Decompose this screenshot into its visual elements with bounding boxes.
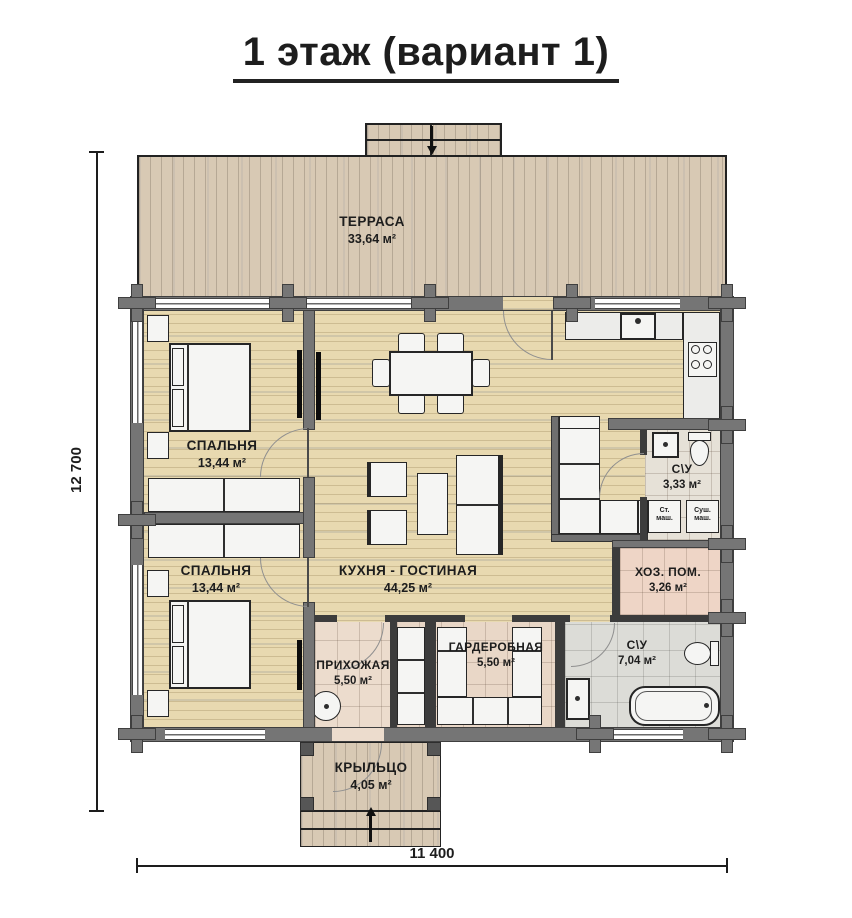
log-cross bbox=[118, 514, 156, 526]
toilet-tank bbox=[710, 641, 719, 666]
dining-table bbox=[389, 351, 473, 396]
room-name: СПАЛЬНЯ bbox=[187, 437, 258, 455]
wall-right bbox=[720, 296, 734, 742]
terrace-door-opening bbox=[503, 297, 553, 310]
pouf-center bbox=[324, 704, 329, 709]
room-name: ГАРДЕРОБНАЯ bbox=[449, 640, 544, 656]
floor-plan-page: 1 этаж (вариант 1) 12 700 11 400 bbox=[0, 0, 852, 918]
entrance-arrow-up-head bbox=[366, 807, 376, 816]
dryer-machine-label: Суш. маш. bbox=[687, 507, 718, 523]
corner-sofa-back bbox=[551, 416, 559, 542]
cabinet-divider bbox=[507, 698, 509, 724]
log-cross bbox=[553, 297, 591, 309]
window bbox=[595, 298, 680, 309]
log-cross bbox=[708, 728, 746, 740]
window bbox=[300, 298, 425, 309]
cabinet-divider bbox=[472, 698, 474, 724]
bed-pillow bbox=[172, 389, 184, 427]
nightstand bbox=[147, 690, 169, 717]
room-label-wardrobe: ГАРДЕРОБНАЯ 5,50 м² bbox=[449, 640, 544, 671]
bed-pillow bbox=[172, 348, 184, 386]
sink-faucet bbox=[635, 318, 641, 324]
dim-label-bottom: 11 400 bbox=[382, 845, 482, 862]
dim-tick bbox=[89, 151, 104, 153]
corner-sofa-seat bbox=[600, 500, 638, 534]
door-leaf bbox=[307, 558, 309, 607]
porch-post bbox=[427, 797, 441, 811]
log-cross bbox=[269, 297, 307, 309]
log-cross bbox=[118, 728, 156, 740]
bed-fold-line bbox=[187, 344, 189, 431]
bathtub-faucet bbox=[704, 703, 709, 708]
dim-tick bbox=[726, 858, 728, 873]
cabinet-divider bbox=[223, 525, 225, 557]
room-area: 13,44 м² bbox=[187, 455, 258, 471]
interior-wall bbox=[425, 622, 436, 729]
wardrobe-cabinet bbox=[437, 697, 542, 725]
interior-wall bbox=[144, 512, 304, 524]
log-cross bbox=[118, 297, 156, 309]
room-area: 5,50 м² bbox=[316, 674, 389, 689]
dining-chair bbox=[398, 394, 425, 414]
wardrobe-cabinet bbox=[397, 627, 425, 725]
log-cross bbox=[708, 612, 746, 624]
tv bbox=[297, 640, 302, 690]
nightstand bbox=[147, 315, 169, 342]
dim-line-bottom bbox=[137, 865, 727, 867]
interior-wall bbox=[612, 548, 620, 615]
room-area: 3,33 м² bbox=[663, 478, 701, 493]
cabinet-divider bbox=[398, 659, 424, 661]
page-title: 1 этаж (вариант 1) bbox=[0, 30, 852, 83]
room-label-bathroom-big: С\У 7,04 м² bbox=[618, 638, 656, 669]
dining-chair bbox=[437, 394, 464, 414]
dim-tick bbox=[89, 810, 104, 812]
dim-line-left bbox=[96, 152, 98, 812]
interior-wall bbox=[608, 418, 720, 430]
corner-sofa-seat bbox=[559, 428, 600, 534]
washbasin-drain bbox=[663, 442, 668, 447]
sofa-cushion-line bbox=[560, 498, 599, 500]
armchair bbox=[367, 510, 407, 545]
room-label-bathroom-small: С\У 3,33 м² bbox=[663, 462, 701, 493]
interior-wall bbox=[555, 622, 565, 729]
room-label-hallway: ПРИХОЖАЯ 5,50 м² bbox=[316, 658, 389, 689]
interior-wall bbox=[385, 615, 465, 622]
terrace-deck bbox=[137, 155, 727, 297]
washbasin-drain bbox=[575, 696, 580, 701]
room-label-terrace: ТЕРРАСА 33,64 м² bbox=[339, 213, 404, 247]
room-name: СПАЛЬНЯ bbox=[181, 562, 252, 580]
bathtub-inner bbox=[635, 691, 712, 721]
room-name: ХОЗ. ПОМ. bbox=[635, 565, 701, 581]
front-door-opening bbox=[332, 728, 384, 741]
dim-label-left: 12 700 bbox=[68, 425, 88, 515]
room-name: ТЕРРАСА bbox=[339, 213, 404, 231]
porch-post bbox=[300, 742, 314, 756]
dim-tick bbox=[136, 858, 138, 873]
log-cross bbox=[708, 297, 746, 309]
dining-chair bbox=[472, 359, 490, 387]
room-area: 33,64 м² bbox=[339, 231, 404, 247]
interior-wall bbox=[303, 477, 315, 558]
entrance-arrow-up bbox=[369, 814, 372, 842]
interior-wall bbox=[612, 540, 720, 548]
log-cross bbox=[708, 538, 746, 550]
stove-burner bbox=[703, 345, 712, 354]
tv bbox=[297, 350, 302, 418]
toilet-bowl bbox=[684, 642, 711, 665]
dining-chair bbox=[372, 359, 390, 387]
room-label-kitchen-living: КУХНЯ - ГОСТИНАЯ 44,25 м² bbox=[339, 562, 477, 596]
room-area: 44,25 м² bbox=[339, 580, 477, 596]
entrance-arrow-down bbox=[430, 126, 433, 148]
coffee-table bbox=[417, 473, 448, 535]
porch-post bbox=[300, 797, 314, 811]
window bbox=[132, 318, 143, 423]
interior-wall bbox=[640, 497, 647, 540]
window bbox=[150, 298, 280, 309]
bed-fold-line bbox=[187, 601, 189, 688]
room-area: 3,26 м² bbox=[635, 581, 701, 596]
interior-wall bbox=[390, 622, 397, 729]
stove-burner bbox=[703, 360, 712, 369]
room-name: ПРИХОЖАЯ bbox=[316, 658, 389, 674]
log-cross bbox=[576, 728, 614, 740]
room-name: КРЫЛЬЦО bbox=[335, 759, 408, 777]
nightstand bbox=[147, 570, 169, 597]
sofa-cushion-line bbox=[560, 463, 599, 465]
interior-wall bbox=[640, 430, 647, 455]
room-name: КУХНЯ - ГОСТИНАЯ bbox=[339, 562, 477, 580]
bed-pillow bbox=[172, 646, 184, 684]
sofa-cushion-line bbox=[457, 504, 499, 506]
stove-burner bbox=[691, 360, 700, 369]
log-cross bbox=[708, 419, 746, 431]
cabinet-divider bbox=[223, 479, 225, 511]
bed-pillow bbox=[172, 605, 184, 643]
door-leaf bbox=[551, 311, 553, 360]
nightstand bbox=[147, 432, 169, 459]
room-label-bedroom-bottom: СПАЛЬНЯ 13,44 м² bbox=[181, 562, 252, 596]
room-area: 13,44 м² bbox=[181, 580, 252, 596]
interior-wall bbox=[303, 310, 315, 430]
tv bbox=[316, 352, 321, 420]
door-leaf bbox=[307, 428, 309, 477]
armchair bbox=[367, 462, 407, 497]
interior-wall bbox=[610, 615, 720, 622]
entrance-arrow-down-head bbox=[427, 146, 437, 155]
room-area: 7,04 м² bbox=[618, 654, 656, 669]
room-name: С\У bbox=[663, 462, 701, 478]
room-label-utility: ХОЗ. ПОМ. 3,26 м² bbox=[635, 565, 701, 596]
dining-chair bbox=[437, 333, 464, 353]
room-label-porch: КРЫЛЬЦО 4,05 м² bbox=[335, 759, 408, 793]
room-label-bedroom-top: СПАЛЬНЯ 13,44 м² bbox=[187, 437, 258, 471]
terrace-steps-divider bbox=[365, 139, 502, 141]
room-area: 5,50 м² bbox=[449, 656, 544, 671]
stove-burner bbox=[691, 345, 700, 354]
window bbox=[132, 565, 143, 695]
page-title-text: 1 этаж (вариант 1) bbox=[233, 30, 620, 83]
porch-post bbox=[427, 742, 441, 756]
room-area: 4,05 м² bbox=[335, 777, 408, 793]
interior-wall bbox=[303, 602, 315, 729]
interior-wall bbox=[315, 615, 337, 622]
interior-wall bbox=[512, 615, 570, 622]
window bbox=[165, 729, 265, 740]
dining-chair bbox=[398, 333, 425, 353]
cabinet-divider bbox=[398, 692, 424, 694]
washing-machine-label: Ст. маш. bbox=[649, 507, 680, 523]
room-name: С\У bbox=[618, 638, 656, 654]
log-cross bbox=[411, 297, 449, 309]
